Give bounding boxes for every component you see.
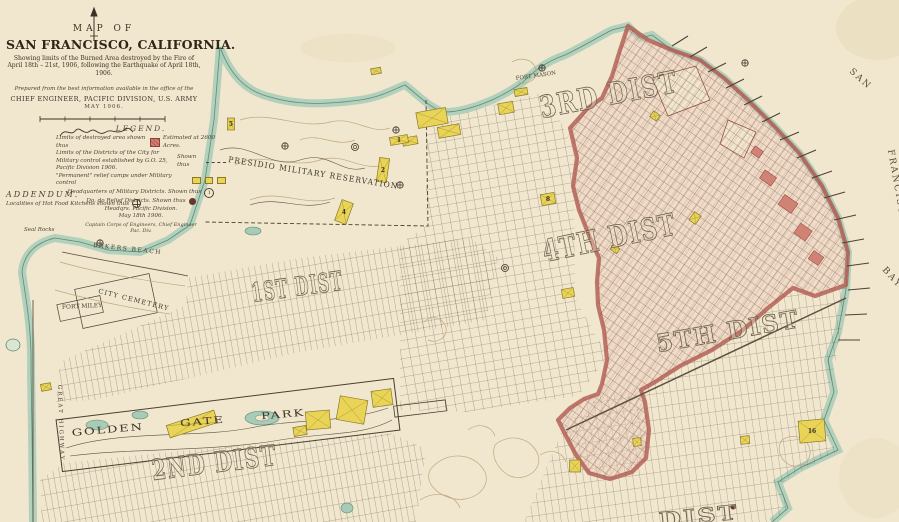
relief-camp: 4 (335, 200, 354, 225)
burned-swatch (150, 138, 160, 147)
hot-food-kitchen-mark (539, 65, 545, 71)
camp-swatch (205, 177, 214, 184)
legend: LEGEND. Limits of destroyed area shown t… (56, 124, 226, 235)
camp-number: 1 (397, 137, 401, 144)
legend-row-districts: Limits of the Districts of the City for … (56, 150, 226, 173)
map-title: SAN FRANCISCO, CALIFORNIA. (6, 37, 202, 53)
addendum-heading: ADDENDUM. (6, 190, 156, 199)
relief-camp: 8 (540, 192, 556, 205)
legend-camps-label: "Permanent" relief camps under Military … (56, 173, 188, 188)
great-highway-label: GREAT HIGHWAY (56, 385, 65, 462)
signer-title: Captain Corps of Engineers, Chief Engine… (56, 222, 226, 229)
relief-camp (293, 425, 307, 436)
small-lake (341, 503, 353, 513)
legend-districts-label: Limits of the Districts of the City for … (56, 150, 174, 173)
relief-camp (561, 288, 574, 299)
bay-label-francisco: FRANCISCO (885, 149, 899, 226)
camp-number: 5 (229, 121, 233, 128)
city-cemetery-label: CITY CEMETERY (98, 287, 171, 312)
addendum: ADDENDUM. Localities of Hot Food Kitchen… (6, 190, 156, 208)
relief-camp (498, 101, 515, 114)
camp-swatch (217, 177, 226, 184)
relief-camp: 5 (228, 118, 235, 130)
relief-camp (570, 460, 581, 472)
hq-military-symbol: 1 (204, 188, 214, 198)
relief-camp (740, 436, 750, 445)
relief-camp (336, 396, 368, 424)
relief-camp (371, 389, 393, 408)
bay-label-san: SAN (847, 67, 873, 92)
legend-districts-shown: Shown thus (177, 154, 203, 169)
hot-food-kitchen-mark (282, 143, 288, 149)
map-date: MAY 1906. (6, 104, 202, 111)
hot-food-kitchen-symbol (132, 199, 141, 208)
camp-number: 4 (342, 209, 346, 216)
camp-number: 8 (546, 196, 550, 203)
addendum-text-row: Localities of Hot Food Kitchens shown th… (6, 199, 156, 208)
addendum-text: Localities of Hot Food Kitchens shown th… (6, 201, 129, 207)
camp-number: 2 (381, 167, 385, 174)
map-subtitle-2: April 18th – 21st, 1906, following the E… (6, 62, 202, 77)
legend-destroyed-note: Estimated at 2600 Acres. (163, 135, 226, 150)
scale-bar (40, 116, 165, 122)
relief-camp (305, 410, 330, 430)
legend-row-camps: "Permanent" relief camps under Military … (56, 173, 226, 188)
relief-camp: 16 (798, 419, 826, 443)
hot-food-kitchen-mark (742, 60, 748, 66)
camp-swatch (192, 177, 201, 184)
park-lake-2 (132, 411, 148, 419)
fort-miley-label: FORT MILEY (62, 302, 104, 311)
seal-rocks-label: Seal Rocks (24, 227, 55, 233)
map-sheet: 1245816 1ST DIST 2ND DIST 3RD DIST 4TH D… (0, 0, 899, 522)
presidio-label: PRESIDIO MILITARY RESERVATION (228, 155, 399, 191)
signature-squiggle (56, 124, 136, 140)
mountain-lake (245, 227, 261, 235)
military-hq-mark (352, 144, 359, 151)
legend-date: May 18th 1906. (56, 213, 226, 221)
relief-camp (633, 438, 642, 447)
map-of-line: MAP OF (6, 24, 202, 35)
office-line: CHIEF ENGINEER, PACIFIC DIVISION, U.S. A… (6, 95, 202, 103)
camp-number: 16 (808, 428, 816, 435)
title-block: MAP OF SAN FRANCISCO, CALIFORNIA. Showin… (6, 24, 202, 111)
relief-camp (371, 67, 382, 75)
district-boundary-swatch (206, 161, 226, 163)
map-subtitle-1: Showing limits of the Burned Area destro… (6, 55, 202, 63)
hq-relief-symbol (189, 198, 196, 205)
seal-rocks (6, 339, 20, 351)
bay-label-bay: BAY (880, 265, 899, 290)
hot-food-kitchen-mark (393, 127, 399, 133)
prepared-line: Prepared from the best information avail… (6, 86, 202, 93)
signer-division: Pac. Div. (56, 228, 226, 235)
relief-camp (40, 383, 51, 392)
